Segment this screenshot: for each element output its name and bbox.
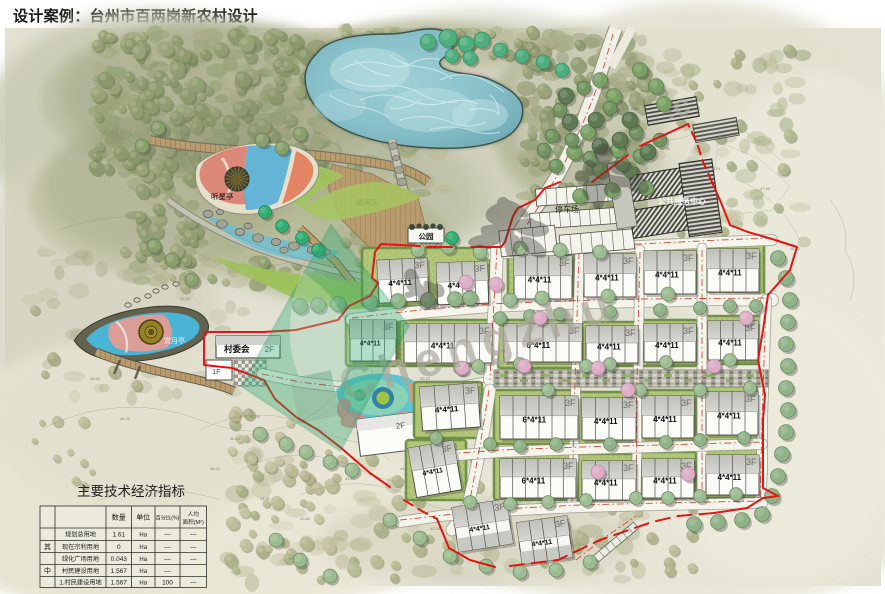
svg-text:3F: 3F (563, 461, 574, 471)
svg-text:4*4*11: 4*4*11 (655, 341, 679, 350)
svg-text:数量: 数量 (112, 512, 126, 521)
svg-text:1.61: 1.61 (112, 532, 125, 539)
svg-text:4*4*11: 4*4*11 (718, 338, 742, 347)
svg-text:3F: 3F (623, 256, 634, 266)
svg-text:4*4*11: 4*4*11 (594, 417, 618, 426)
svg-text:3F: 3F (683, 253, 694, 263)
svg-text:公共服务中心: 公共服务中心 (658, 196, 706, 206)
svg-text:3F: 3F (565, 398, 576, 408)
svg-text:3F: 3F (625, 328, 636, 338)
svg-text:2F: 2F (395, 421, 405, 431)
svg-text:47.20: 47.20 (180, 296, 191, 301)
svg-text:6*4*11: 6*4*11 (522, 476, 546, 485)
svg-text:46.10: 46.10 (230, 436, 241, 441)
svg-text:公园: 公园 (419, 232, 434, 241)
svg-text:单位: 单位 (136, 512, 150, 521)
svg-text:45.60: 45.60 (210, 466, 221, 471)
svg-text:Ha: Ha (139, 557, 147, 563)
svg-text:1F: 1F (212, 367, 221, 376)
svg-text:主要技术经济指标: 主要技术经济指标 (77, 484, 185, 499)
svg-text:—: — (164, 568, 171, 575)
svg-text:3F: 3F (746, 251, 757, 261)
svg-text:3F: 3F (559, 258, 570, 268)
svg-text:Ha: Ha (139, 533, 147, 539)
svg-text:Ha: Ha (139, 580, 147, 586)
svg-text:48.60: 48.60 (630, 106, 641, 111)
svg-text:3F: 3F (681, 398, 692, 408)
svg-text:停车场: 停车场 (555, 204, 579, 214)
svg-text:其: 其 (44, 543, 51, 551)
svg-text:3F: 3F (414, 260, 426, 271)
svg-text:—: — (190, 579, 197, 586)
svg-text:—: — (190, 544, 197, 551)
svg-text:—: — (190, 556, 197, 563)
svg-text:—: — (164, 532, 171, 539)
svg-text:人均: 人均 (188, 510, 200, 518)
svg-text:4*4*11: 4*4*11 (718, 268, 742, 277)
svg-text:—: — (164, 544, 171, 551)
svg-text:3F: 3F (623, 400, 634, 410)
svg-text:1.567: 1.567 (111, 579, 128, 586)
svg-text:百分比(%): 百分比(%) (156, 513, 180, 521)
svg-text:—: — (190, 532, 197, 539)
svg-text:4*4*11: 4*4*11 (528, 275, 552, 284)
svg-text:现在宗利用地: 现在宗利用地 (62, 543, 99, 551)
svg-text:Ha: Ha (139, 545, 147, 551)
svg-text:中: 中 (44, 566, 51, 575)
svg-text:3F: 3F (746, 457, 757, 467)
svg-text:3F: 3F (465, 385, 477, 396)
svg-text:规划总用地: 规划总用地 (65, 531, 96, 539)
svg-text:面积(M²): 面积(M²) (182, 518, 204, 526)
svg-text:3F: 3F (474, 263, 485, 273)
svg-text:4*4*11: 4*4*11 (653, 476, 677, 485)
svg-text:47.60: 47.60 (760, 186, 771, 191)
svg-text:4*4*11: 4*4*11 (718, 473, 742, 482)
svg-text:1.村民建设用地: 1.村民建设用地 (59, 578, 101, 586)
svg-text:绿化广场用地: 绿化广场用地 (62, 555, 99, 563)
svg-text:43.80: 43.80 (300, 516, 311, 521)
svg-text:0.043: 0.043 (111, 556, 128, 563)
svg-text:村民建设用地: 村民建设用地 (62, 567, 99, 575)
svg-text:Ha: Ha (139, 569, 147, 575)
svg-text:46.80: 46.80 (90, 376, 101, 381)
svg-text:3F: 3F (683, 326, 694, 336)
svg-text:6*4*11: 6*4*11 (523, 415, 547, 424)
svg-text:3F: 3F (554, 518, 566, 529)
svg-text:45.80: 45.80 (250, 414, 261, 419)
svg-text:4*4*11: 4*4*11 (653, 415, 677, 424)
svg-text:100: 100 (162, 579, 173, 586)
svg-text:4*4*11: 4*4*11 (655, 270, 679, 279)
svg-text:—: — (164, 556, 171, 563)
svg-text:4*4*11: 4*4*11 (435, 404, 460, 415)
svg-text:4*4*11: 4*4*11 (717, 411, 741, 420)
svg-text:4*4*11: 4*4*11 (597, 343, 621, 352)
svg-text:3F: 3F (623, 463, 634, 473)
svg-text:赏月亭: 赏月亭 (164, 336, 185, 345)
svg-text:46.40: 46.40 (120, 416, 131, 421)
svg-text:0: 0 (117, 544, 121, 551)
svg-text:村委会: 村委会 (224, 344, 250, 354)
svg-text:听星亭: 听星亭 (211, 191, 234, 201)
svg-text:1.567: 1.567 (111, 568, 128, 575)
svg-text:44.80: 44.80 (260, 496, 271, 501)
